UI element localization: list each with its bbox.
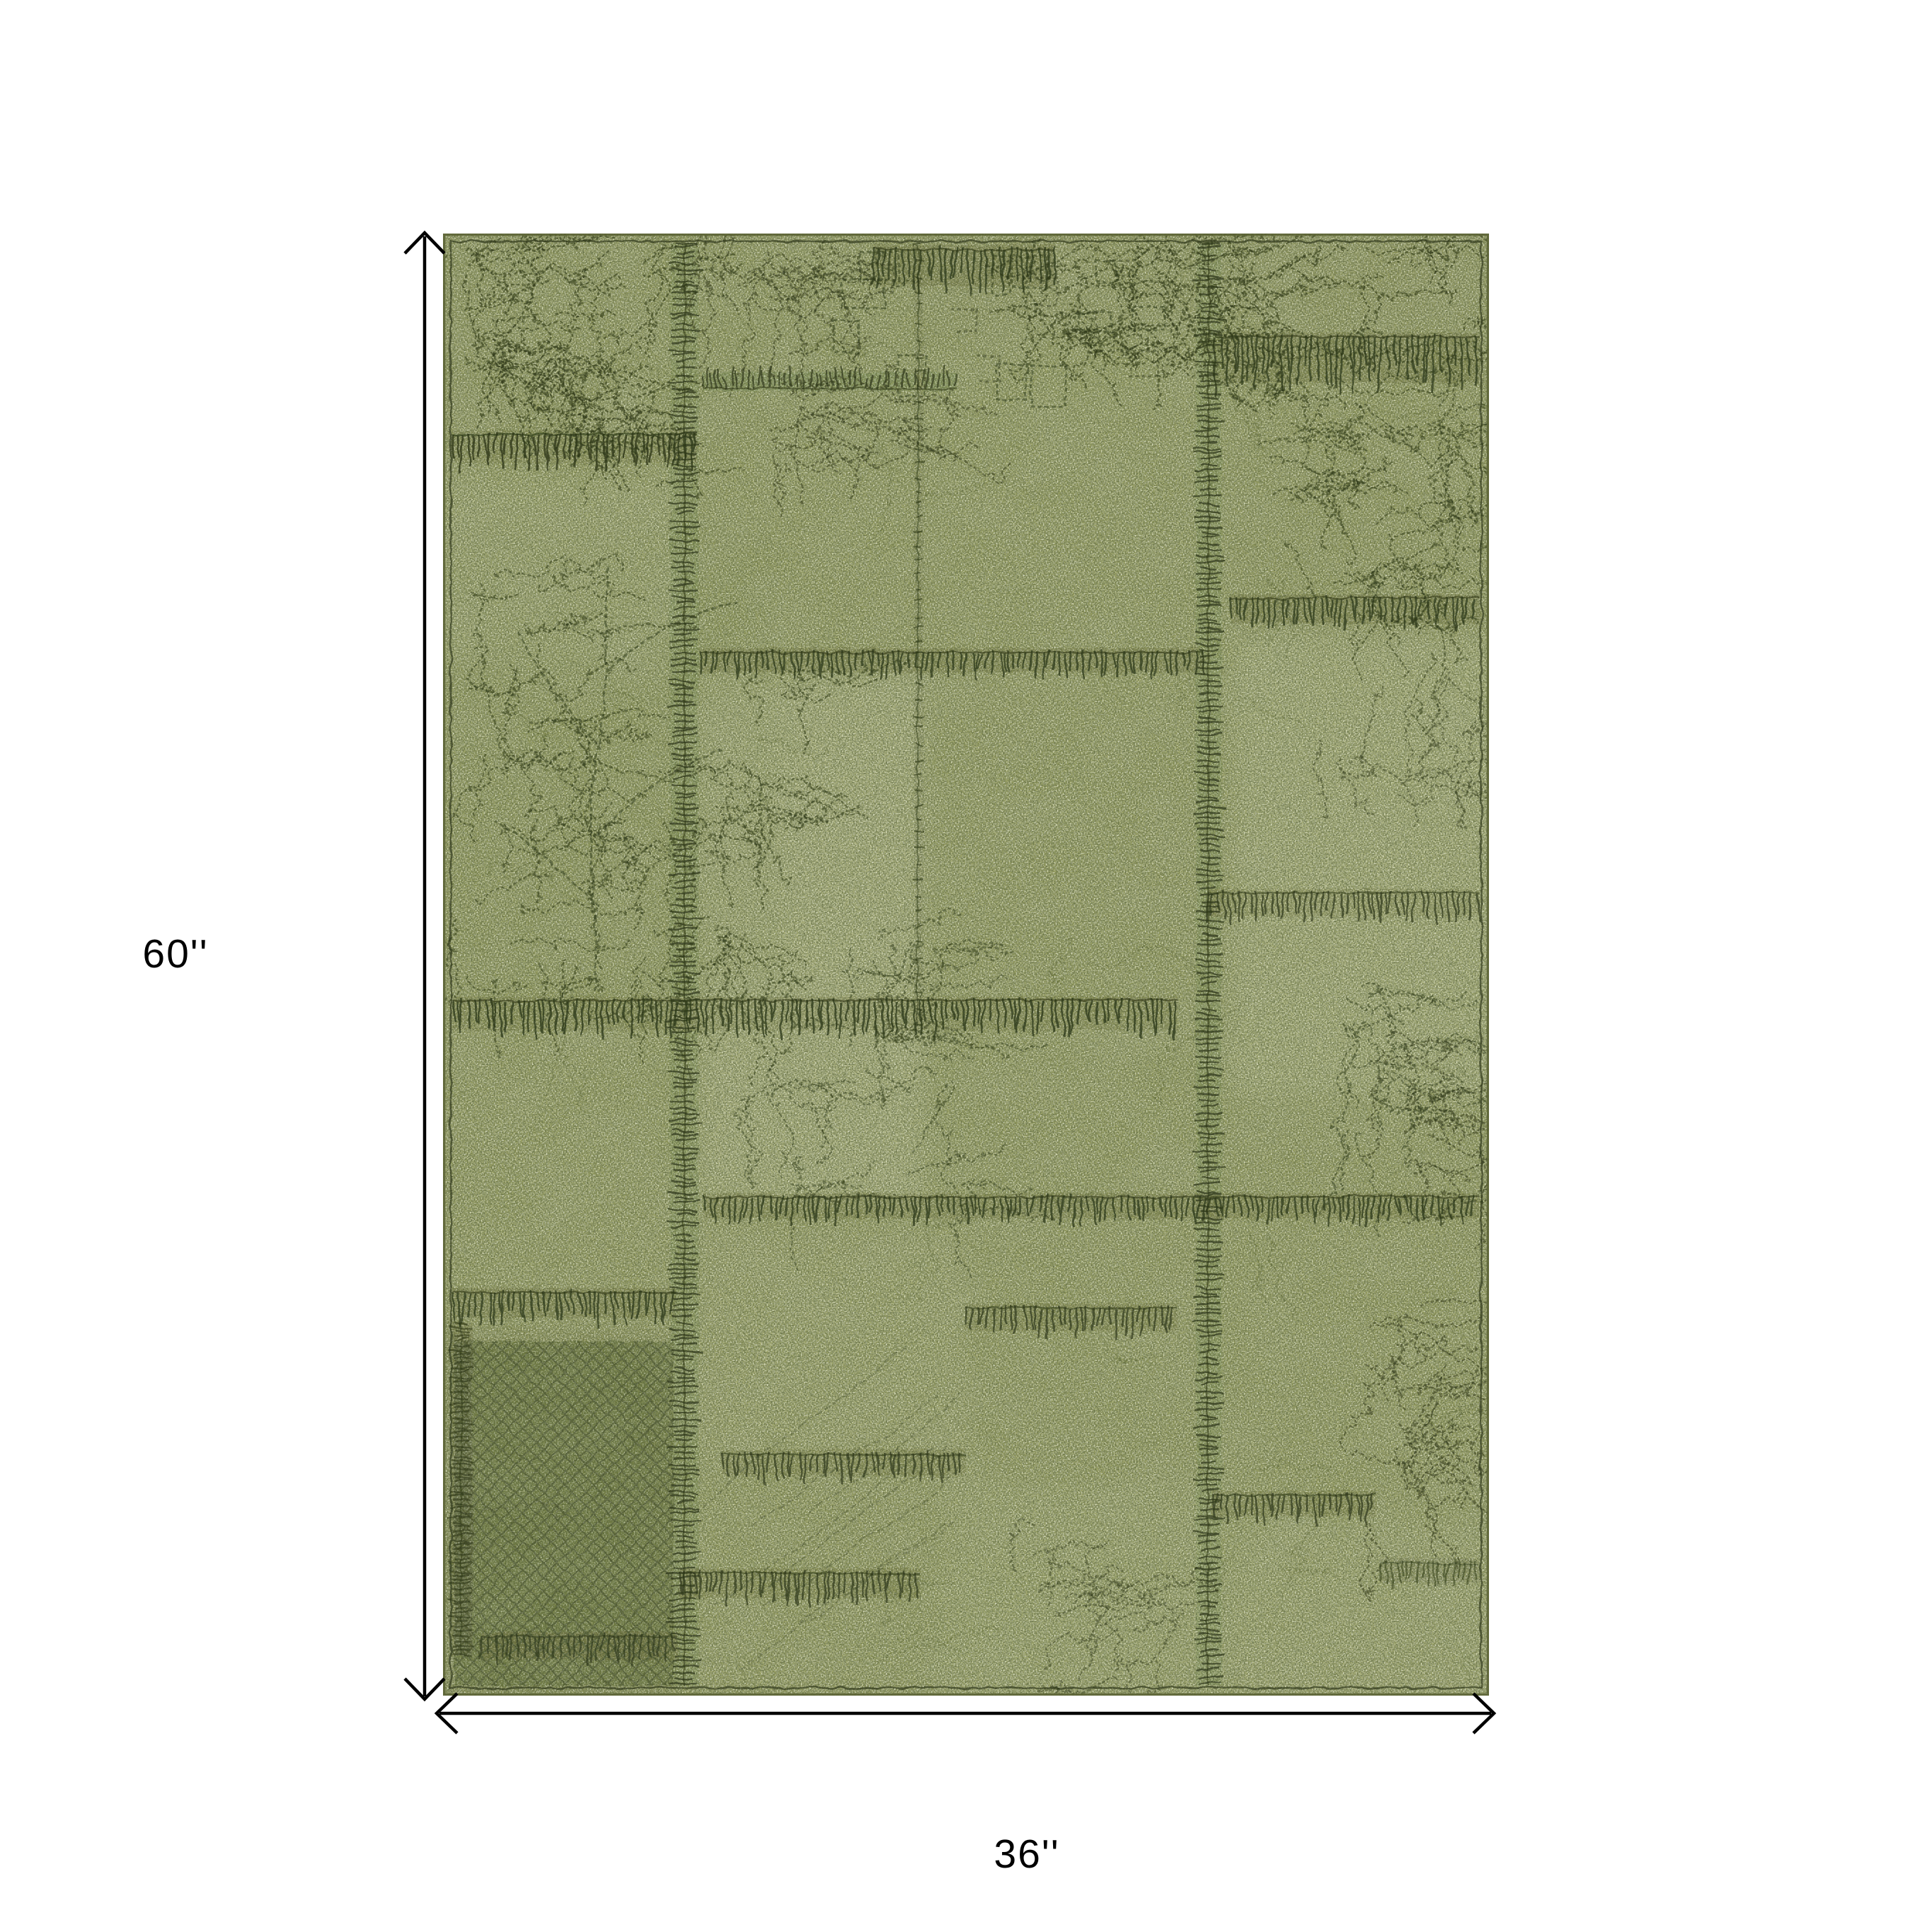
svg-text:60'': 60'' (142, 931, 208, 977)
svg-text:36'': 36'' (994, 1832, 1059, 1877)
